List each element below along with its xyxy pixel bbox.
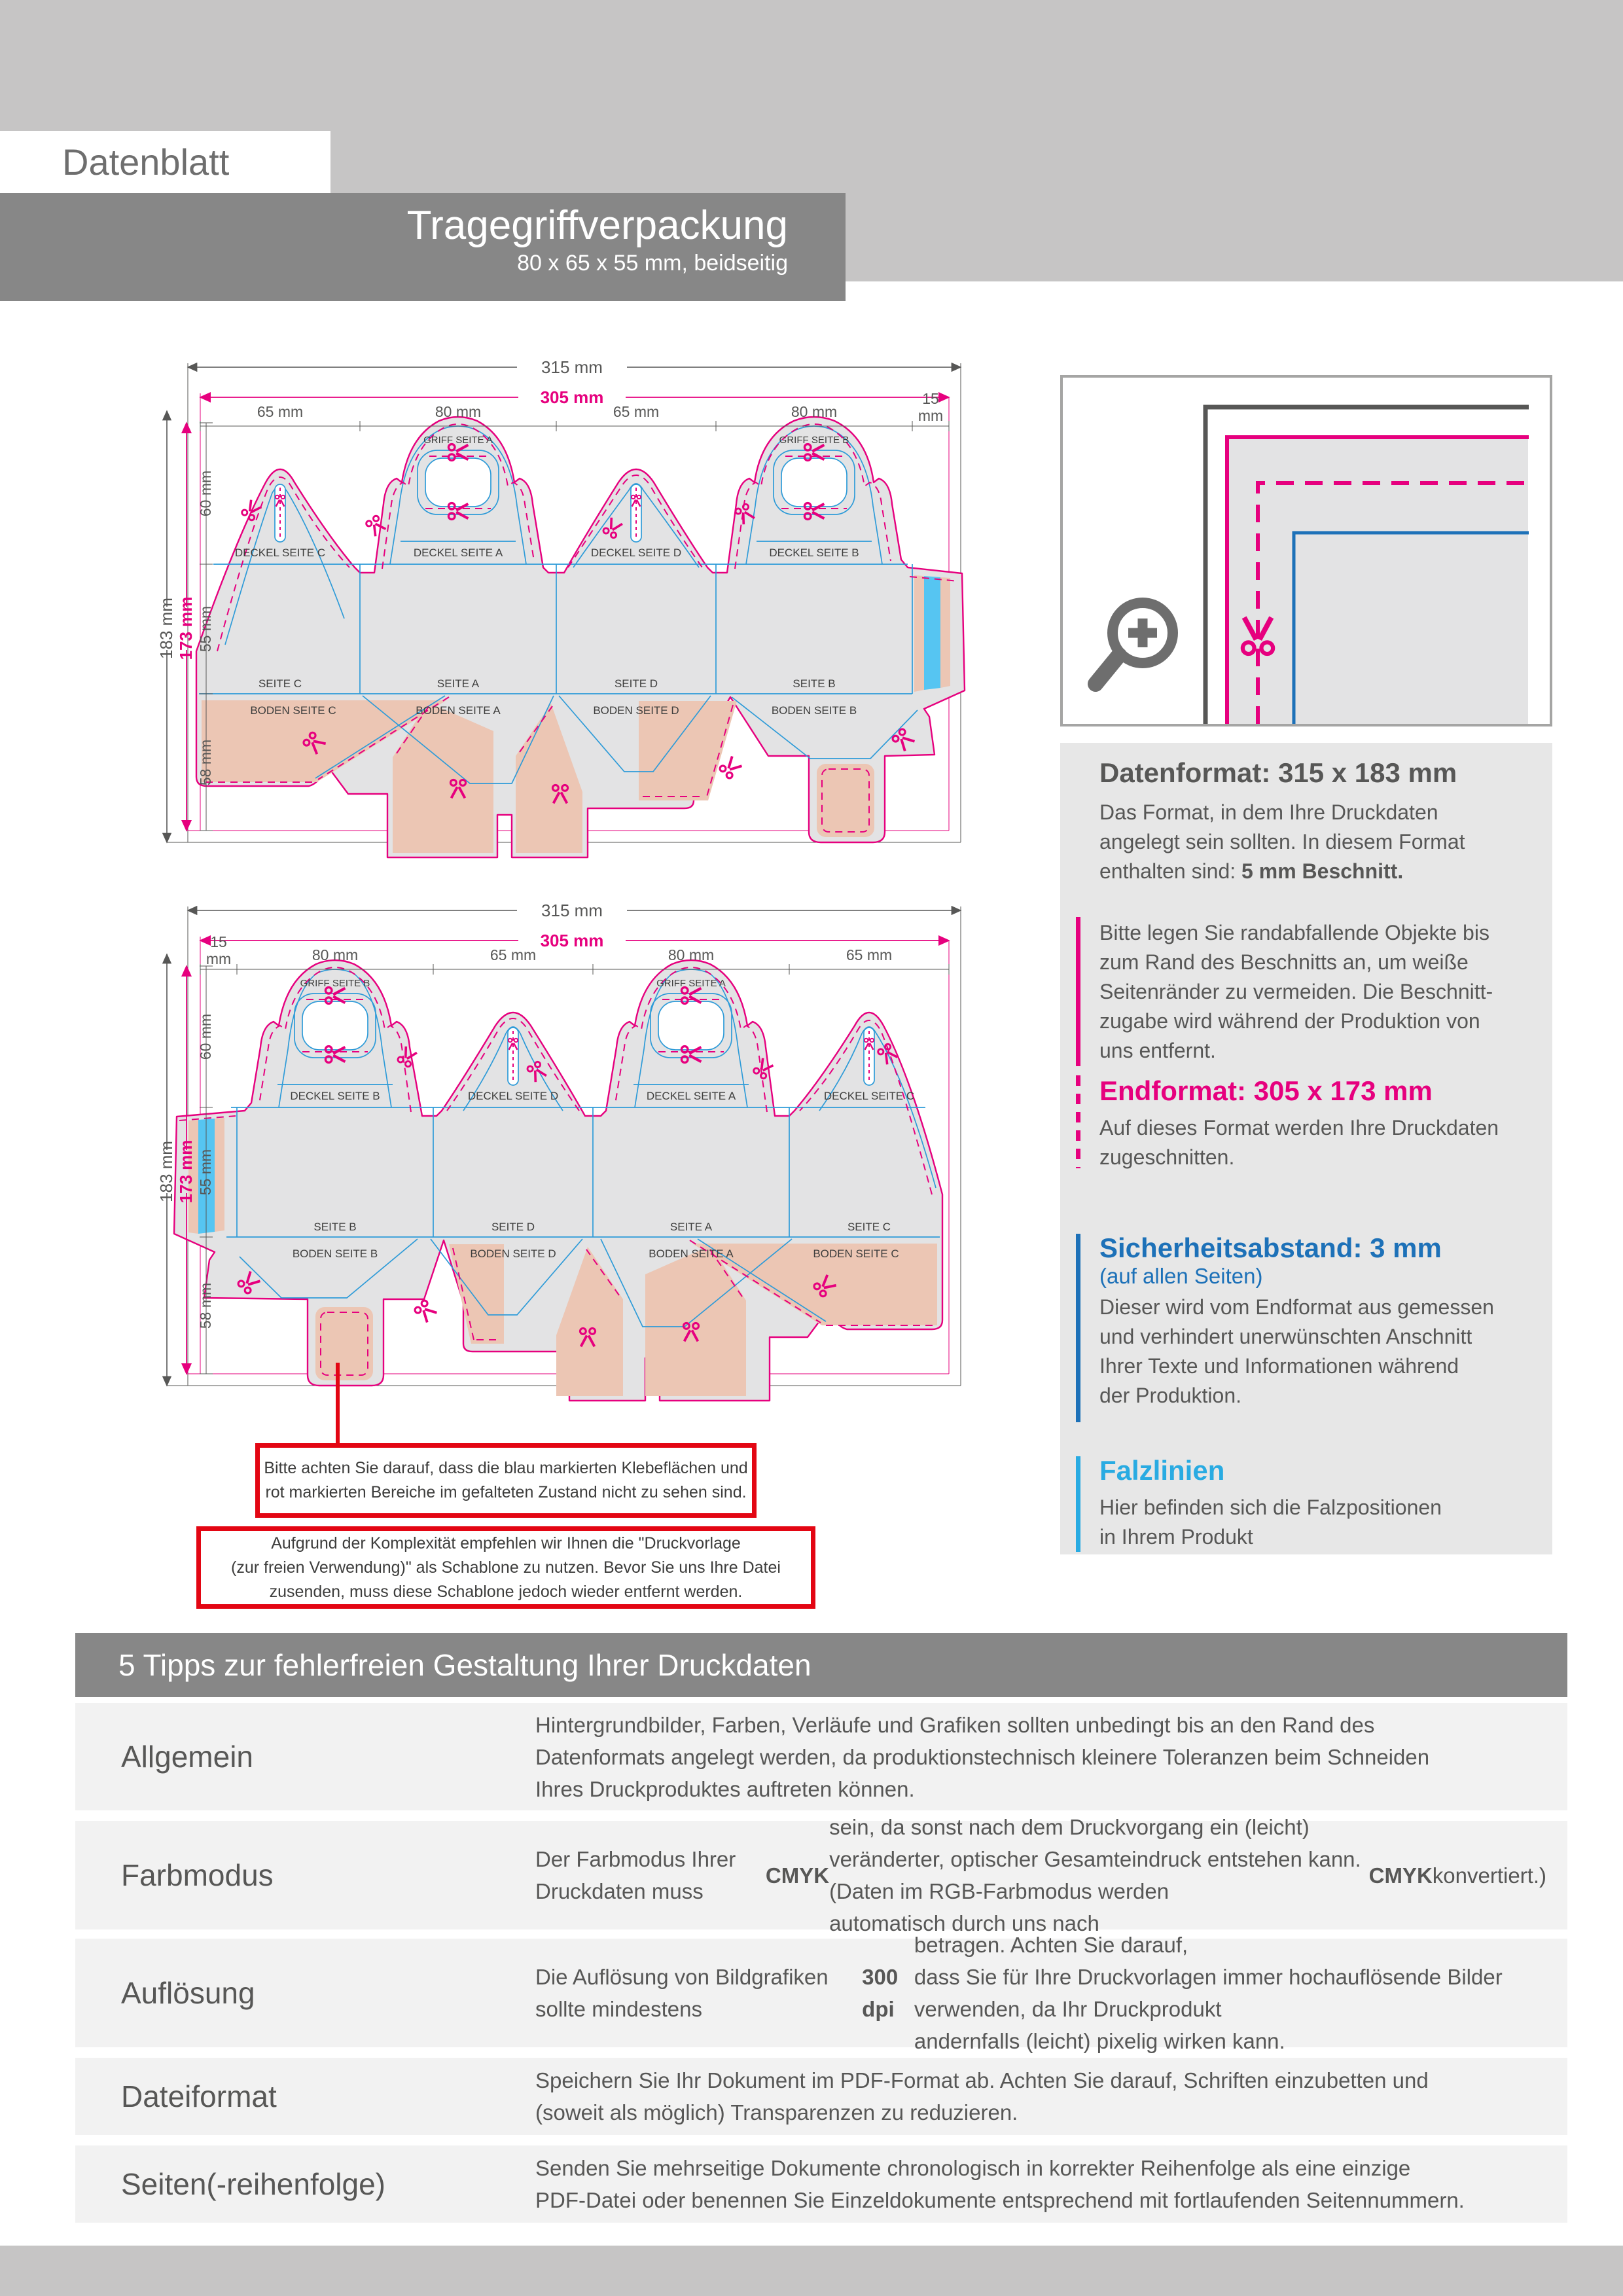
svg-text:SEITE C: SEITE C (259, 677, 302, 690)
safety-title: Sicherheitsabstand: 3 mm (1099, 1232, 1531, 1264)
safety-bar (1076, 1234, 1080, 1422)
svg-text:BODEN SEITE D: BODEN SEITE D (593, 704, 679, 717)
tip-row-allgemein: Allgemein Hintergrundbilder, Farben, Ver… (75, 1703, 1567, 1810)
svg-text:60 mm: 60 mm (197, 471, 214, 516)
svg-text:mm: mm (918, 407, 943, 424)
warning-note-template: Aufgrund der Komplexität empfehlen wir I… (196, 1526, 815, 1609)
svg-text:DECKEL SEITE A: DECKEL SEITE A (414, 547, 503, 559)
tip-row-dateiformat: Dateiformat Speichern Sie Ihr Dokument i… (75, 2058, 1567, 2135)
svg-text:DECKEL SEITE B: DECKEL SEITE B (290, 1090, 380, 1102)
tip-text: Der Farbmodus Ihrer Druckdaten muss CMYK… (535, 1821, 1546, 1929)
svg-text:65 mm: 65 mm (613, 403, 659, 420)
svg-text:SEITE D: SEITE D (491, 1221, 535, 1233)
tip-text: Hintergrundbilder, Farben, Verläufe und … (535, 1703, 1546, 1810)
legend-panel: Datenformat: 315 x 183 mm Das Format, in… (1060, 743, 1552, 1554)
svg-text:DECKEL SEITE C: DECKEL SEITE C (824, 1090, 914, 1102)
svg-text:183 mm: 183 mm (156, 1141, 176, 1202)
svg-text:GRIFF SEITE A: GRIFF SEITE A (656, 978, 726, 989)
endformat-section: Endformat: 305 x 173 mm Auf dieses Forma… (1099, 1075, 1531, 1172)
product-subtitle: 80 x 65 x 55 mm, beidseitig (0, 251, 788, 276)
tip-row-seitenreihenfolge: Seiten(-reihenfolge) Senden Sie mehrseit… (75, 2145, 1567, 2223)
svg-text:173 mm: 173 mm (176, 597, 196, 660)
svg-text:65 mm: 65 mm (257, 403, 303, 420)
tips-heading-banner: 5 Tipps zur fehlerfreien Gestaltung Ihre… (75, 1633, 1567, 1697)
svg-text:BODEN SEITE A: BODEN SEITE A (416, 704, 501, 717)
die-cut-shape: GRIFF SEITE A GRIFF SEITE B DECKEL SEITE… (196, 417, 965, 857)
handle-hole-b (302, 1001, 368, 1050)
falzlinien-section: Falzlinien Hier befinden sich die Falzpo… (1099, 1455, 1531, 1552)
svg-text:15: 15 (210, 933, 227, 950)
slot-d (631, 484, 641, 542)
svg-text:SEITE D: SEITE D (615, 677, 658, 690)
svg-text:183 mm: 183 mm (156, 598, 176, 659)
svg-text:80 mm: 80 mm (791, 403, 837, 420)
tip-label: Auflösung (121, 1939, 255, 2047)
svg-text:305 mm: 305 mm (541, 931, 604, 950)
handle-hole-a (658, 1001, 724, 1050)
svg-text:DECKEL SEITE D: DECKEL SEITE D (468, 1090, 558, 1102)
svg-text:SEITE C: SEITE C (847, 1221, 891, 1233)
svg-text:BODEN SEITE B: BODEN SEITE B (772, 704, 857, 717)
handle-hole-a (425, 458, 491, 507)
svg-text:GRIFF SEITE B: GRIFF SEITE B (779, 435, 849, 446)
endformat-body: Auf dieses Format werden Ihre Druckdaten… (1099, 1113, 1531, 1172)
tip-label: Seiten(-reihenfolge) (121, 2145, 385, 2223)
tip-label: Dateiformat (121, 2058, 277, 2135)
svg-text:GRIFF SEITE B: GRIFF SEITE B (300, 978, 370, 989)
svg-text:BODEN SEITE A: BODEN SEITE A (649, 1247, 734, 1260)
svg-text:BODEN SEITE B: BODEN SEITE B (293, 1247, 378, 1260)
die-cut-shape: GRIFF SEITE B GRIFF SEITE A DECKEL SEITE… (174, 960, 942, 1401)
svg-text:GRIFF SEITE A: GRIFF SEITE A (423, 435, 493, 446)
tip-label: Allgemein (121, 1703, 253, 1810)
tip-text: Speichern Sie Ihr Dokument im PDF-Format… (535, 2058, 1546, 2135)
svg-text:DECKEL SEITE B: DECKEL SEITE B (769, 547, 859, 559)
svg-text:15: 15 (922, 390, 939, 407)
svg-text:315 mm: 315 mm (541, 357, 603, 377)
bleed-note-section: Bitte legen Sie randabfallende Objekte b… (1099, 918, 1531, 1066)
bleed-note-text: Bitte legen Sie randabfallende Objekte b… (1099, 918, 1531, 1066)
svg-text:BODEN SEITE C: BODEN SEITE C (813, 1247, 899, 1260)
svg-text:58 mm: 58 mm (197, 1283, 214, 1329)
datenformat-body: Das Format, in dem Ihre Druckdaten angel… (1099, 798, 1531, 886)
svg-text:80 mm: 80 mm (312, 946, 358, 963)
endformat-bar (1076, 1075, 1080, 1168)
svg-text:65 mm: 65 mm (846, 946, 892, 963)
svg-text:mm: mm (206, 950, 231, 967)
datasheet-page: Datenblatt Tragegriffverpackung 80 x 65 … (0, 0, 1623, 2296)
safety-section: Sicherheitsabstand: 3 mm (auf allen Seit… (1099, 1232, 1531, 1410)
product-title: Tragegriffverpackung (0, 205, 788, 247)
svg-text:80 mm: 80 mm (435, 403, 481, 420)
safety-body: Dieser wird vom Endformat aus gemessen u… (1099, 1293, 1531, 1410)
warning-note-template-text: Aufgrund der Komplexität empfehlen wir I… (231, 1532, 781, 1604)
slot-c (864, 1028, 874, 1085)
warning-note-glue: Bitte achten Sie darauf, dass die blau m… (255, 1443, 757, 1518)
svg-text:SEITE B: SEITE B (793, 677, 835, 690)
tip-row-farbmodus: Farbmodus Der Farbmodus Ihrer Druckdaten… (75, 1821, 1567, 1929)
svg-text:55 mm: 55 mm (197, 1149, 214, 1195)
datenformat-title: Datenformat: 315 x 183 mm (1099, 757, 1531, 789)
dieline-diagram-1: GRIFF SEITE A GRIFF SEITE B DECKEL SEITE… (151, 357, 988, 900)
svg-text:DECKEL SEITE C: DECKEL SEITE C (235, 547, 325, 559)
falzlinien-body: Hier befinden sich die Falzpositionen in… (1099, 1493, 1531, 1552)
svg-text:SEITE A: SEITE A (437, 677, 480, 690)
note-pointer-line (336, 1363, 340, 1445)
falzlinien-bar (1076, 1456, 1080, 1552)
svg-text:58 mm: 58 mm (197, 740, 214, 785)
title-banner: Tragegriffverpackung 80 x 65 x 55 mm, be… (0, 193, 846, 301)
svg-text:173 mm: 173 mm (176, 1140, 196, 1204)
tip-label: Farbmodus (121, 1821, 274, 1929)
format-corner-diagram (1205, 407, 1529, 724)
svg-text:315 mm: 315 mm (541, 901, 603, 920)
svg-text:80 mm: 80 mm (668, 946, 714, 963)
svg-text:65 mm: 65 mm (490, 946, 536, 963)
bleed-area-fill (1227, 437, 1528, 724)
svg-text:DECKEL SEITE D: DECKEL SEITE D (591, 547, 681, 559)
tip-text: Senden Sie mehrseitige Dokumente chronol… (535, 2145, 1546, 2223)
svg-text:305 mm: 305 mm (541, 387, 604, 407)
safety-subtitle: (auf allen Seiten) (1099, 1264, 1531, 1289)
bleed-note-bar (1076, 917, 1080, 1066)
svg-text:BODEN SEITE C: BODEN SEITE C (250, 704, 336, 717)
warning-note-glue-text: Bitte achten Sie darauf, dass die blau m… (264, 1456, 747, 1505)
svg-text:SEITE B: SEITE B (313, 1221, 356, 1233)
svg-text:60 mm: 60 mm (197, 1014, 214, 1060)
datenformat-section: Datenformat: 315 x 183 mm Das Format, in… (1099, 757, 1531, 886)
svg-text:DECKEL SEITE A: DECKEL SEITE A (647, 1090, 736, 1102)
sheet-label: Datenblatt (62, 141, 229, 183)
dieline-diagram-2: GRIFF SEITE B GRIFF SEITE A DECKEL SEITE… (151, 900, 988, 1443)
glue-strip-cyan (924, 576, 940, 690)
magnifier-plus-icon (1096, 603, 1173, 684)
svg-text:55 mm: 55 mm (197, 606, 214, 652)
falzlinien-title: Falzlinien (1099, 1455, 1531, 1486)
tip-row-aufloesung: Auflösung Die Auflösung von Bildgrafiken… (75, 1939, 1567, 2047)
svg-text:BODEN SEITE D: BODEN SEITE D (470, 1247, 556, 1260)
zoom-detail-box (1060, 375, 1552, 726)
slot-c (275, 484, 285, 542)
tip-text: Die Auflösung von Bildgrafiken sollte mi… (535, 1939, 1546, 2047)
svg-text:SEITE A: SEITE A (670, 1221, 713, 1233)
tips-heading: 5 Tipps zur fehlerfreien Gestaltung Ihre… (118, 1648, 811, 1682)
sheet-label-box: Datenblatt (0, 131, 330, 193)
slot-d (508, 1028, 518, 1085)
footer-band (0, 2246, 1623, 2296)
endformat-title: Endformat: 305 x 173 mm (1099, 1075, 1531, 1107)
handle-hole-b (781, 458, 847, 507)
